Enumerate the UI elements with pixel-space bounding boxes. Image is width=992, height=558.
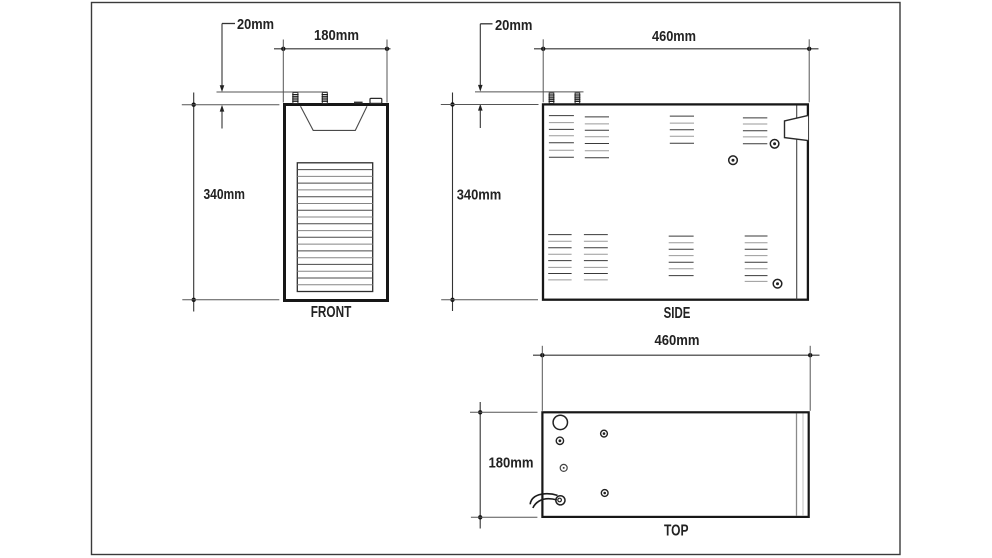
svg-text:20mm: 20mm (495, 17, 533, 34)
svg-text:20mm: 20mm (237, 16, 274, 33)
svg-text:SIDE: SIDE (664, 305, 691, 322)
svg-text:460mm: 460mm (652, 28, 696, 45)
svg-text:TOP: TOP (664, 523, 689, 540)
svg-text:180mm: 180mm (489, 455, 534, 472)
svg-text:180mm: 180mm (314, 27, 359, 44)
svg-text:FRONT: FRONT (311, 304, 352, 321)
svg-text:460mm: 460mm (655, 332, 700, 349)
svg-text:340mm: 340mm (457, 187, 502, 204)
svg-text:340mm: 340mm (203, 186, 245, 203)
